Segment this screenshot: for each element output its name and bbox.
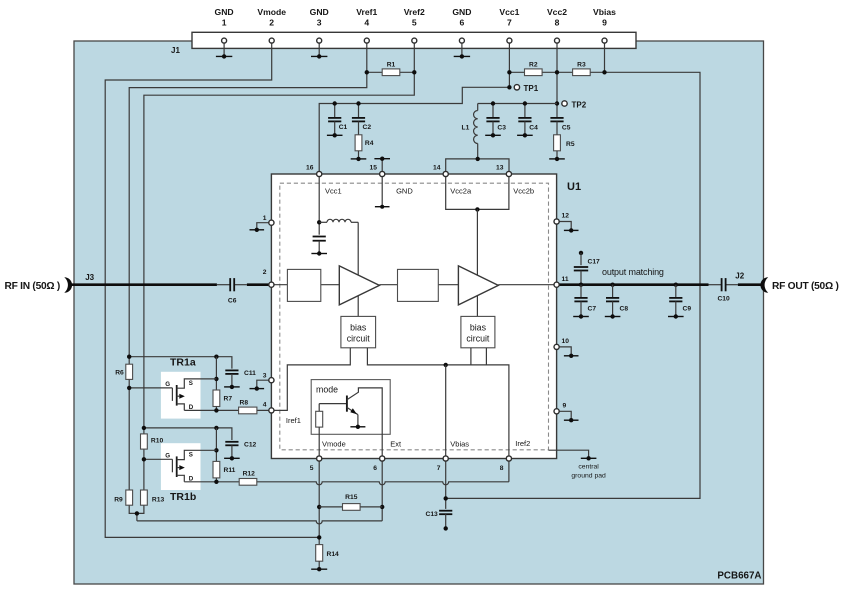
- svg-text:central: central: [578, 463, 599, 470]
- svg-text:GND: GND: [310, 7, 329, 17]
- svg-text:GND: GND: [452, 7, 471, 17]
- svg-text:3: 3: [317, 17, 322, 27]
- svg-text:15: 15: [370, 164, 378, 171]
- svg-text:2: 2: [263, 269, 267, 276]
- svg-text:1: 1: [222, 17, 227, 27]
- svg-text:8: 8: [555, 17, 560, 27]
- svg-text:R7: R7: [224, 396, 233, 403]
- svg-text:TR1b: TR1b: [170, 491, 196, 503]
- svg-text:2: 2: [269, 17, 274, 27]
- svg-text:C10: C10: [717, 295, 730, 302]
- svg-text:Vref2: Vref2: [404, 7, 425, 17]
- svg-text:C8: C8: [620, 306, 629, 313]
- svg-text:Vref1: Vref1: [356, 7, 377, 17]
- svg-text:5: 5: [412, 17, 417, 27]
- svg-text:C9: C9: [683, 306, 692, 313]
- svg-text:R6: R6: [115, 370, 124, 377]
- svg-text:L1: L1: [462, 125, 470, 132]
- svg-text:bias: bias: [350, 323, 367, 333]
- svg-text:C2: C2: [363, 124, 372, 131]
- svg-text:GND: GND: [215, 7, 234, 17]
- svg-text:Vcc2a: Vcc2a: [450, 187, 472, 196]
- svg-text:mode: mode: [316, 385, 338, 395]
- svg-text:PCB667A: PCB667A: [717, 571, 761, 582]
- svg-text:Vbias: Vbias: [450, 440, 469, 449]
- svg-text:circuit: circuit: [466, 334, 490, 344]
- svg-text:9: 9: [602, 17, 607, 27]
- svg-text:Iref2: Iref2: [515, 439, 530, 448]
- svg-text:TP2: TP2: [572, 100, 587, 109]
- svg-text:4: 4: [364, 17, 369, 27]
- svg-text:7: 7: [437, 465, 441, 472]
- svg-text:R8: R8: [240, 400, 249, 407]
- svg-text:R3: R3: [577, 62, 586, 69]
- svg-text:R15: R15: [345, 494, 358, 501]
- svg-text:1: 1: [263, 215, 267, 222]
- svg-text:8: 8: [500, 465, 504, 472]
- svg-text:output matching: output matching: [602, 267, 664, 277]
- svg-text:14: 14: [433, 164, 441, 171]
- svg-text:J3: J3: [85, 273, 94, 282]
- svg-text:C1: C1: [339, 124, 348, 131]
- svg-text:10: 10: [562, 338, 570, 345]
- svg-text:S: S: [189, 380, 193, 387]
- svg-text:ground pad: ground pad: [571, 472, 606, 479]
- svg-text:RF OUT (50Ω ): RF OUT (50Ω ): [772, 281, 839, 292]
- svg-text:11: 11: [562, 276, 569, 283]
- svg-text:6: 6: [460, 17, 465, 27]
- svg-text:R10: R10: [151, 437, 164, 444]
- svg-text:R14: R14: [327, 551, 340, 558]
- svg-text:R4: R4: [365, 140, 374, 147]
- svg-text:Vmode: Vmode: [257, 7, 286, 17]
- svg-text:Vcc1: Vcc1: [499, 7, 519, 17]
- svg-text:S: S: [189, 452, 193, 459]
- svg-text:C4: C4: [529, 125, 538, 132]
- svg-text:4: 4: [263, 401, 267, 408]
- svg-text:R2: R2: [529, 62, 538, 69]
- svg-text:R5: R5: [566, 141, 575, 148]
- svg-text:C17: C17: [588, 259, 601, 266]
- svg-text:9: 9: [563, 402, 567, 409]
- svg-text:C6: C6: [228, 297, 237, 304]
- svg-text:R9: R9: [114, 496, 123, 503]
- svg-text:Vbias: Vbias: [593, 7, 616, 17]
- svg-text:R13: R13: [152, 496, 165, 503]
- svg-text:Vmode: Vmode: [322, 440, 346, 449]
- svg-text:R12: R12: [243, 471, 256, 478]
- svg-text:Vcc1: Vcc1: [325, 187, 342, 196]
- svg-text:Vcc2b: Vcc2b: [513, 187, 534, 196]
- svg-text:C5: C5: [562, 125, 571, 132]
- svg-text:Ext: Ext: [390, 440, 402, 449]
- svg-text:TR1a: TR1a: [170, 356, 196, 368]
- svg-text:GND: GND: [396, 187, 413, 196]
- svg-text:6: 6: [373, 465, 377, 472]
- svg-text:J1: J1: [171, 46, 180, 55]
- svg-text:16: 16: [306, 164, 314, 171]
- svg-text:R1: R1: [387, 62, 396, 69]
- svg-text:12: 12: [562, 212, 570, 219]
- svg-text:3: 3: [263, 373, 267, 380]
- svg-text:J2: J2: [735, 272, 744, 281]
- svg-text:C11: C11: [244, 370, 256, 377]
- svg-text:bias: bias: [470, 323, 487, 333]
- svg-text:C3: C3: [497, 125, 506, 132]
- svg-text:13: 13: [496, 164, 504, 171]
- svg-text:5: 5: [310, 465, 314, 472]
- svg-text:G: G: [165, 381, 170, 388]
- svg-text:circuit: circuit: [347, 334, 371, 344]
- svg-text:RF IN (50Ω ): RF IN (50Ω ): [5, 281, 61, 292]
- svg-text:C12: C12: [244, 441, 257, 448]
- svg-text:G: G: [165, 453, 170, 460]
- svg-text:TP1: TP1: [524, 84, 539, 93]
- svg-text:7: 7: [507, 17, 512, 27]
- svg-text:Iref1: Iref1: [286, 416, 301, 425]
- svg-text:C7: C7: [588, 306, 597, 313]
- svg-text:C13: C13: [426, 511, 439, 518]
- svg-text:R11: R11: [224, 467, 236, 474]
- svg-text:U1: U1: [567, 181, 581, 193]
- svg-text:Vcc2: Vcc2: [547, 7, 567, 17]
